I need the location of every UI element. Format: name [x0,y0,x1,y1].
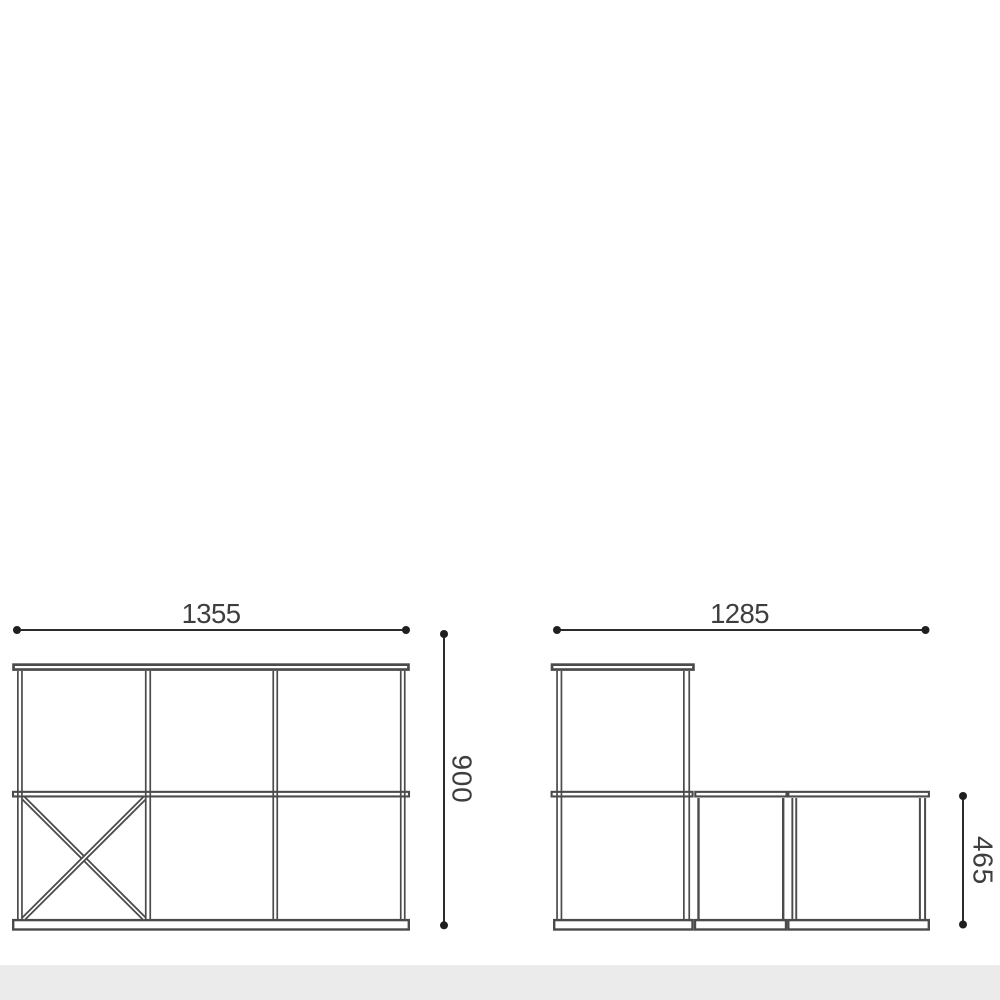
svg-text:900: 900 [447,754,478,803]
svg-text:1285: 1285 [710,598,769,629]
svg-text:1355: 1355 [182,598,241,629]
svg-text:465: 465 [968,836,999,885]
